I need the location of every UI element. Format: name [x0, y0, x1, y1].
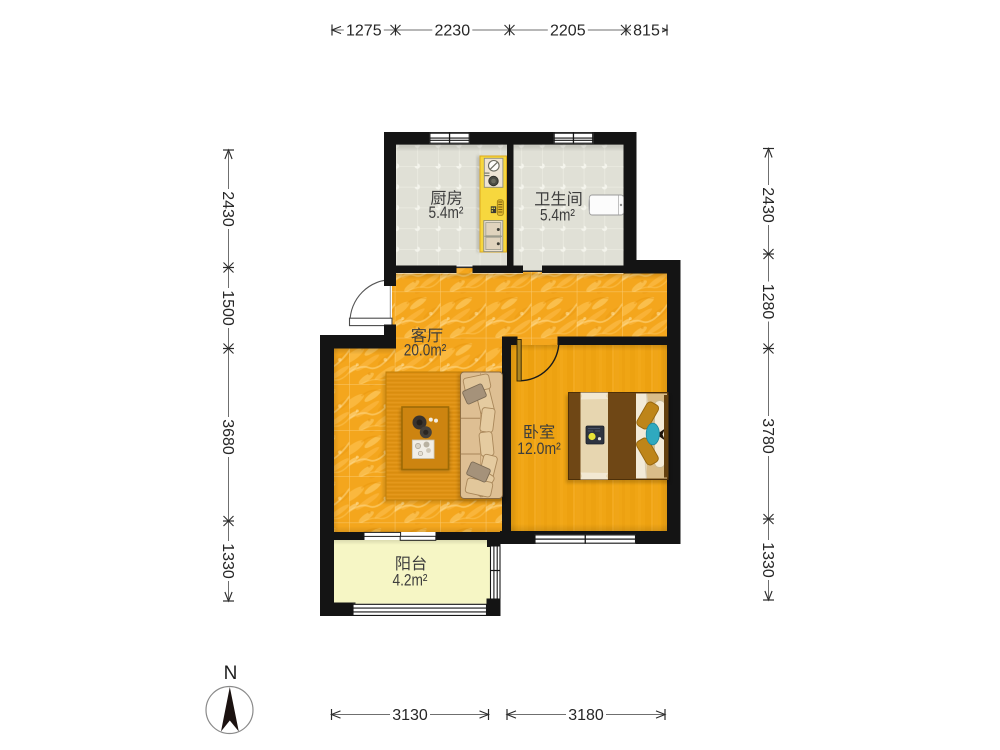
svg-text:1330: 1330 [219, 543, 236, 579]
svg-text:3130: 3130 [392, 707, 428, 724]
svg-text:2430: 2430 [759, 187, 776, 223]
svg-text:3680: 3680 [219, 419, 236, 455]
svg-text:1500: 1500 [219, 290, 236, 326]
svg-text:3180: 3180 [568, 707, 604, 724]
svg-text:2430: 2430 [219, 191, 236, 227]
svg-text:12.0m²: 12.0m² [517, 440, 561, 458]
svg-text:1330: 1330 [759, 542, 776, 578]
svg-text:N: N [224, 663, 238, 684]
svg-text:3780: 3780 [759, 418, 776, 454]
svg-text:1275: 1275 [346, 23, 382, 40]
svg-text:815: 815 [633, 23, 660, 40]
svg-text:5.4m²: 5.4m² [540, 207, 575, 225]
svg-text:2230: 2230 [435, 23, 471, 40]
svg-text:5.4m²: 5.4m² [429, 204, 464, 222]
svg-text:4.2m²: 4.2m² [393, 572, 428, 590]
svg-text:2205: 2205 [550, 23, 586, 40]
svg-text:20.0m²: 20.0m² [404, 342, 447, 360]
svg-text:1280: 1280 [759, 284, 776, 320]
